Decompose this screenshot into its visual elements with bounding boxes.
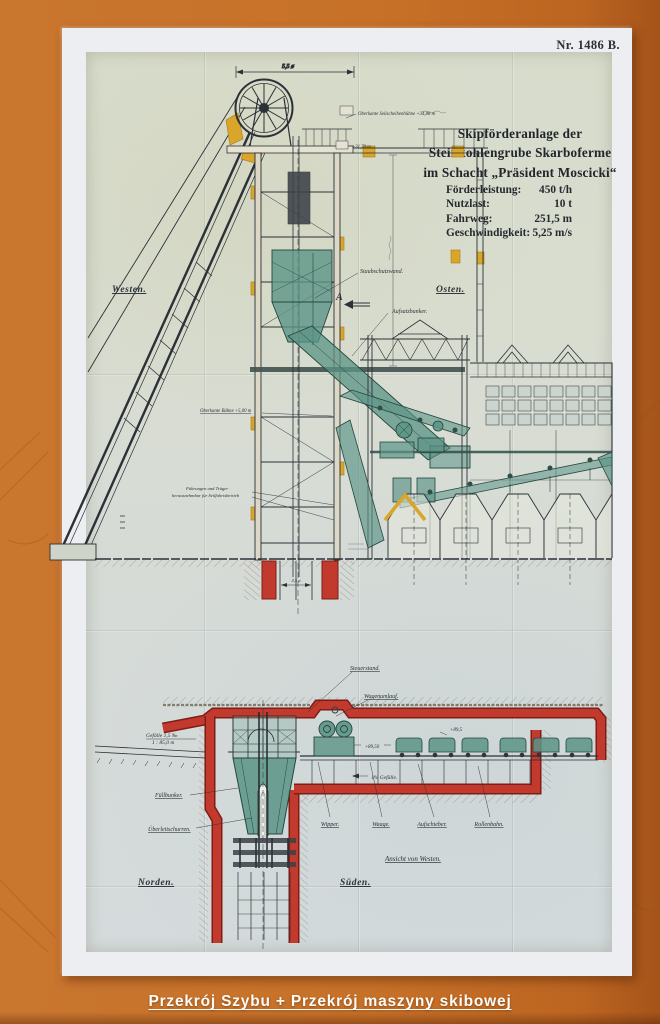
spec-label: Geschwindigkeit:: [446, 226, 530, 240]
plate-number: Nr. 1486 B.: [470, 38, 620, 53]
caption-text: Przekrój Szybu + Przekrój maszyny skibow…: [148, 993, 511, 1010]
fold-crease: [358, 52, 359, 952]
fold-crease: [86, 886, 612, 887]
photo-caption: Przekrój Szybu + Przekrój maszyny skibow…: [0, 993, 660, 1011]
spec-label: Nutzlast:: [446, 197, 490, 211]
fold-crease: [204, 52, 205, 952]
spec-value: 10 t: [554, 197, 572, 211]
spec-value: 251,5 m: [534, 212, 572, 226]
photo-on-orange-wall: Nr. 1486 B. Skipförderanlage der Steinko…: [0, 0, 660, 1024]
title-line-3: im Schacht „Präsident Moscicki“: [404, 163, 636, 182]
spec-value: 5,25 m/s: [532, 226, 572, 240]
fold-crease: [86, 374, 612, 375]
spec-value: 450 t/h: [539, 183, 572, 197]
spec-row: Nutzlast: 10 t: [446, 197, 572, 211]
spec-table: Förderleistung: 450 t/h Nutzlast: 10 t F…: [446, 183, 572, 241]
title-line-1: Skipförderanlage der: [404, 124, 636, 143]
drawing-title: Skipförderanlage der Steinkohlengrube Sk…: [404, 124, 636, 182]
spec-row: Fahrweg: 251,5 m: [446, 212, 572, 226]
spec-label: Fahrweg:: [446, 212, 492, 226]
title-line-2: Steinkohlengrube Skarboferme: [404, 143, 636, 162]
spec-row: Förderleistung: 450 t/h: [446, 183, 572, 197]
fold-crease: [86, 630, 612, 631]
spec-row: Geschwindigkeit: 5,25 m/s: [446, 226, 572, 240]
spec-label: Förderleistung:: [446, 183, 521, 197]
